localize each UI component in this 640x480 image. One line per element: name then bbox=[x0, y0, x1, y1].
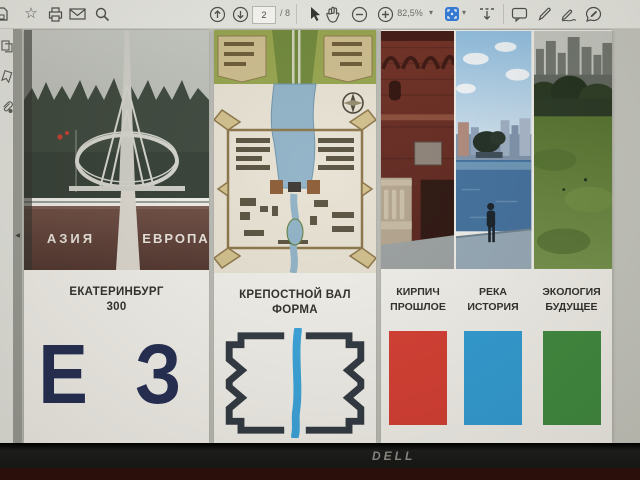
river-person-photo bbox=[456, 30, 531, 270]
attachments-icon[interactable] bbox=[1, 100, 13, 114]
swatch-blue bbox=[464, 331, 522, 425]
page-number-input[interactable]: 2 bbox=[252, 6, 276, 24]
zoom-level-value[interactable]: 82,5% bbox=[394, 8, 426, 18]
bookmarks-icon[interactable] bbox=[1, 70, 13, 84]
fill-and-sign-icon[interactable] bbox=[584, 5, 602, 23]
pedestal-label-asia: АЗИЯ bbox=[47, 231, 95, 246]
toolbar-divider bbox=[296, 4, 297, 24]
document-page: АЗИЯ ЕВРОПА ЕКАТЕРИНБУРГ 300 Е З bbox=[22, 28, 640, 443]
sign-icon[interactable] bbox=[560, 5, 578, 23]
previous-page-icon[interactable] bbox=[208, 5, 226, 23]
collapse-pane-icon[interactable]: ◀ bbox=[15, 232, 20, 239]
monitor-bezel: DELL bbox=[0, 443, 640, 468]
e3-logo: Е З bbox=[29, 325, 205, 423]
board-fortress-wall: КРЕПОСТНОЙ ВАЛ ФОРМА bbox=[214, 30, 376, 443]
swatch-red bbox=[389, 331, 447, 425]
pedestal-label-europe: ЕВРОПА bbox=[142, 231, 209, 246]
star-icon[interactable]: ☆ bbox=[22, 5, 40, 23]
pencil-icon[interactable] bbox=[536, 5, 554, 23]
desk-surface bbox=[0, 468, 640, 480]
pdf-toolbar: ☆ 2 / 8 82,5% ▾ bbox=[0, 0, 640, 29]
save-icon[interactable] bbox=[0, 5, 10, 23]
pdf-viewer-screen: ☆ 2 / 8 82,5% ▾ bbox=[0, 0, 640, 443]
fortress-plan-map bbox=[214, 30, 376, 273]
board-brick-river-ecology: КИРПИЧ ПРОШЛОЕ РЕКА ИСТОРИЯ ЭКОЛОГИЯ БУД… bbox=[381, 30, 612, 443]
select-cursor-icon[interactable] bbox=[306, 5, 324, 23]
toolbar-divider bbox=[503, 4, 504, 24]
dell-logo: DELL bbox=[372, 449, 415, 463]
zoom-out-icon[interactable] bbox=[350, 5, 368, 23]
board2-title: КРЕПОСТНОЙ ВАЛ ФОРМА bbox=[214, 288, 376, 318]
print-icon[interactable] bbox=[46, 5, 64, 23]
zoom-in-icon[interactable] bbox=[376, 5, 394, 23]
navigation-pane bbox=[0, 28, 13, 443]
zoom-dropdown-caret[interactable]: ▾ bbox=[429, 8, 433, 17]
board3-titles: КИРПИЧ ПРОШЛОЕ РЕКА ИСТОРИЯ ЭКОЛОГИЯ БУД… bbox=[381, 285, 612, 314]
fortress-river-icon bbox=[220, 328, 370, 438]
scroll-mode-icon[interactable] bbox=[478, 5, 496, 23]
board1-title: ЕКАТЕРИНБУРГ 300 bbox=[24, 285, 209, 315]
swatch-green bbox=[543, 331, 601, 425]
comment-icon[interactable] bbox=[510, 5, 528, 23]
search-icon[interactable] bbox=[93, 5, 111, 23]
next-page-icon[interactable] bbox=[231, 5, 249, 23]
color-swatches bbox=[381, 331, 612, 425]
page-thumbnails-icon[interactable] bbox=[1, 40, 13, 54]
pane-splitter[interactable]: ◀ bbox=[13, 28, 22, 443]
compass-rose-icon bbox=[343, 93, 363, 113]
brick-tower-photo bbox=[381, 30, 454, 270]
fit-page-icon[interactable] bbox=[443, 5, 461, 23]
email-icon[interactable] bbox=[68, 5, 86, 23]
board-ekaterinburg-300: АЗИЯ ЕВРОПА ЕКАТЕРИНБУРГ 300 Е З bbox=[24, 30, 209, 443]
fit-page-dropdown-caret[interactable]: ▾ bbox=[462, 8, 466, 17]
hand-tool-icon[interactable] bbox=[324, 5, 342, 23]
ecology-city-photo bbox=[534, 30, 612, 270]
europe-asia-monument-photo: АЗИЯ ЕВРОПА bbox=[24, 30, 209, 270]
page-total-label: / 8 bbox=[280, 8, 290, 18]
